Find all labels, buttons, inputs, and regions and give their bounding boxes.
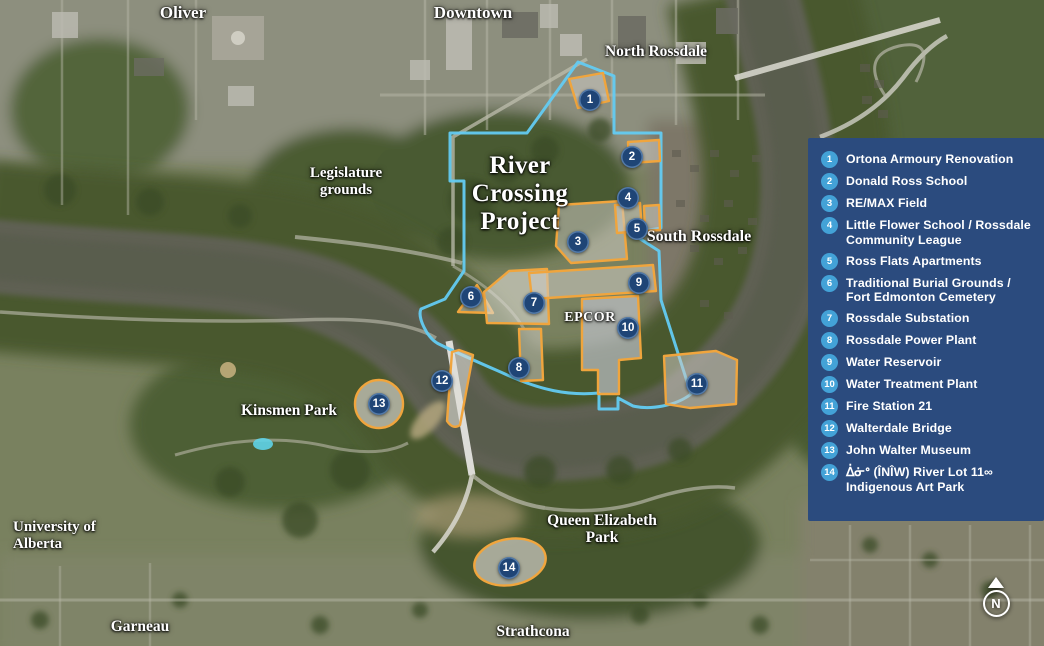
map-marker-14: 14 xyxy=(498,557,520,579)
map-marker-8: 8 xyxy=(508,357,530,379)
legend-item-11: 11 Fire Station 21 xyxy=(821,398,1032,415)
legend-item-8: 8 Rossdale Power Plant xyxy=(821,332,1032,349)
legend-item-1: 1 Ortona Armoury Renovation xyxy=(821,151,1032,168)
north-arrow-icon xyxy=(988,577,1004,588)
map-marker-9: 9 xyxy=(628,272,650,294)
legend-label-1: Ortona Armoury Renovation xyxy=(846,151,1013,167)
legend-badge-2: 2 xyxy=(821,173,838,190)
map-marker-11: 11 xyxy=(686,373,708,395)
north-arrow: N xyxy=(982,577,1010,617)
legend-item-6: 6 Traditional Burial Grounds / Fort Edmo… xyxy=(821,275,1032,306)
legend-badge-12: 12 xyxy=(821,420,838,437)
legend-label-10: Water Treatment Plant xyxy=(846,376,977,392)
legend-item-5: 5 Ross Flats Apartments xyxy=(821,253,1032,270)
legend-label-5: Ross Flats Apartments xyxy=(846,253,982,269)
legend-label-11: Fire Station 21 xyxy=(846,398,932,414)
legend-label-14: ᐄᓃᐤ (ÎNÎW) River Lot 11∞ Indigenous Art … xyxy=(846,464,1032,495)
map-marker-12: 12 xyxy=(431,370,453,392)
legend-item-7: 7 Rossdale Substation xyxy=(821,310,1032,327)
map-marker-4: 4 xyxy=(617,187,639,209)
legend-label-8: Rossdale Power Plant xyxy=(846,332,976,348)
legend-label-4: Little Flower School / Rossdale Communit… xyxy=(846,217,1032,248)
legend-badge-11: 11 xyxy=(821,398,838,415)
legend-item-4: 4 Little Flower School / Rossdale Commun… xyxy=(821,217,1032,248)
legend-label-3: RE/MAX Field xyxy=(846,195,927,211)
map-marker-1: 1 xyxy=(579,89,601,111)
legend-label-12: Walterdale Bridge xyxy=(846,420,952,436)
legend-panel: 1 Ortona Armoury Renovation 2 Donald Ros… xyxy=(808,138,1044,521)
legend-item-10: 10 Water Treatment Plant xyxy=(821,376,1032,393)
map-marker-7: 7 xyxy=(523,292,545,314)
legend-badge-3: 3 xyxy=(821,195,838,212)
legend-badge-10: 10 xyxy=(821,376,838,393)
legend-badge-8: 8 xyxy=(821,332,838,349)
legend-item-9: 9 Water Reservoir xyxy=(821,354,1032,371)
map-marker-10: 10 xyxy=(617,317,639,339)
north-label: N xyxy=(983,590,1010,617)
map-marker-3: 3 xyxy=(567,231,589,253)
map-marker-2: 2 xyxy=(621,146,643,168)
legend-item-2: 2 Donald Ross School xyxy=(821,173,1032,190)
legend-badge-14: 14 xyxy=(821,464,838,481)
legend-label-9: Water Reservoir xyxy=(846,354,941,370)
legend-label-7: Rossdale Substation xyxy=(846,310,970,326)
legend-badge-6: 6 xyxy=(821,275,838,292)
legend-item-13: 13 John Walter Museum xyxy=(821,442,1032,459)
map-infographic: Oliver Downtown North Rossdale Legislatu… xyxy=(0,0,1044,646)
legend-item-3: 3 RE/MAX Field xyxy=(821,195,1032,212)
map-marker-5: 5 xyxy=(626,218,648,240)
legend-badge-5: 5 xyxy=(821,253,838,270)
legend-item-14: 14 ᐄᓃᐤ (ÎNÎW) River Lot 11∞ Indigenous A… xyxy=(821,464,1032,495)
legend-badge-1: 1 xyxy=(821,151,838,168)
legend-label-6: Traditional Burial Grounds / Fort Edmont… xyxy=(846,275,1032,306)
legend-badge-13: 13 xyxy=(821,442,838,459)
legend-label-13: John Walter Museum xyxy=(846,442,971,458)
legend-badge-9: 9 xyxy=(821,354,838,371)
legend-item-12: 12 Walterdale Bridge xyxy=(821,420,1032,437)
legend-badge-7: 7 xyxy=(821,310,838,327)
legend-label-2: Donald Ross School xyxy=(846,173,967,189)
map-marker-13: 13 xyxy=(368,393,390,415)
map-marker-6: 6 xyxy=(460,286,482,308)
legend-badge-4: 4 xyxy=(821,217,838,234)
